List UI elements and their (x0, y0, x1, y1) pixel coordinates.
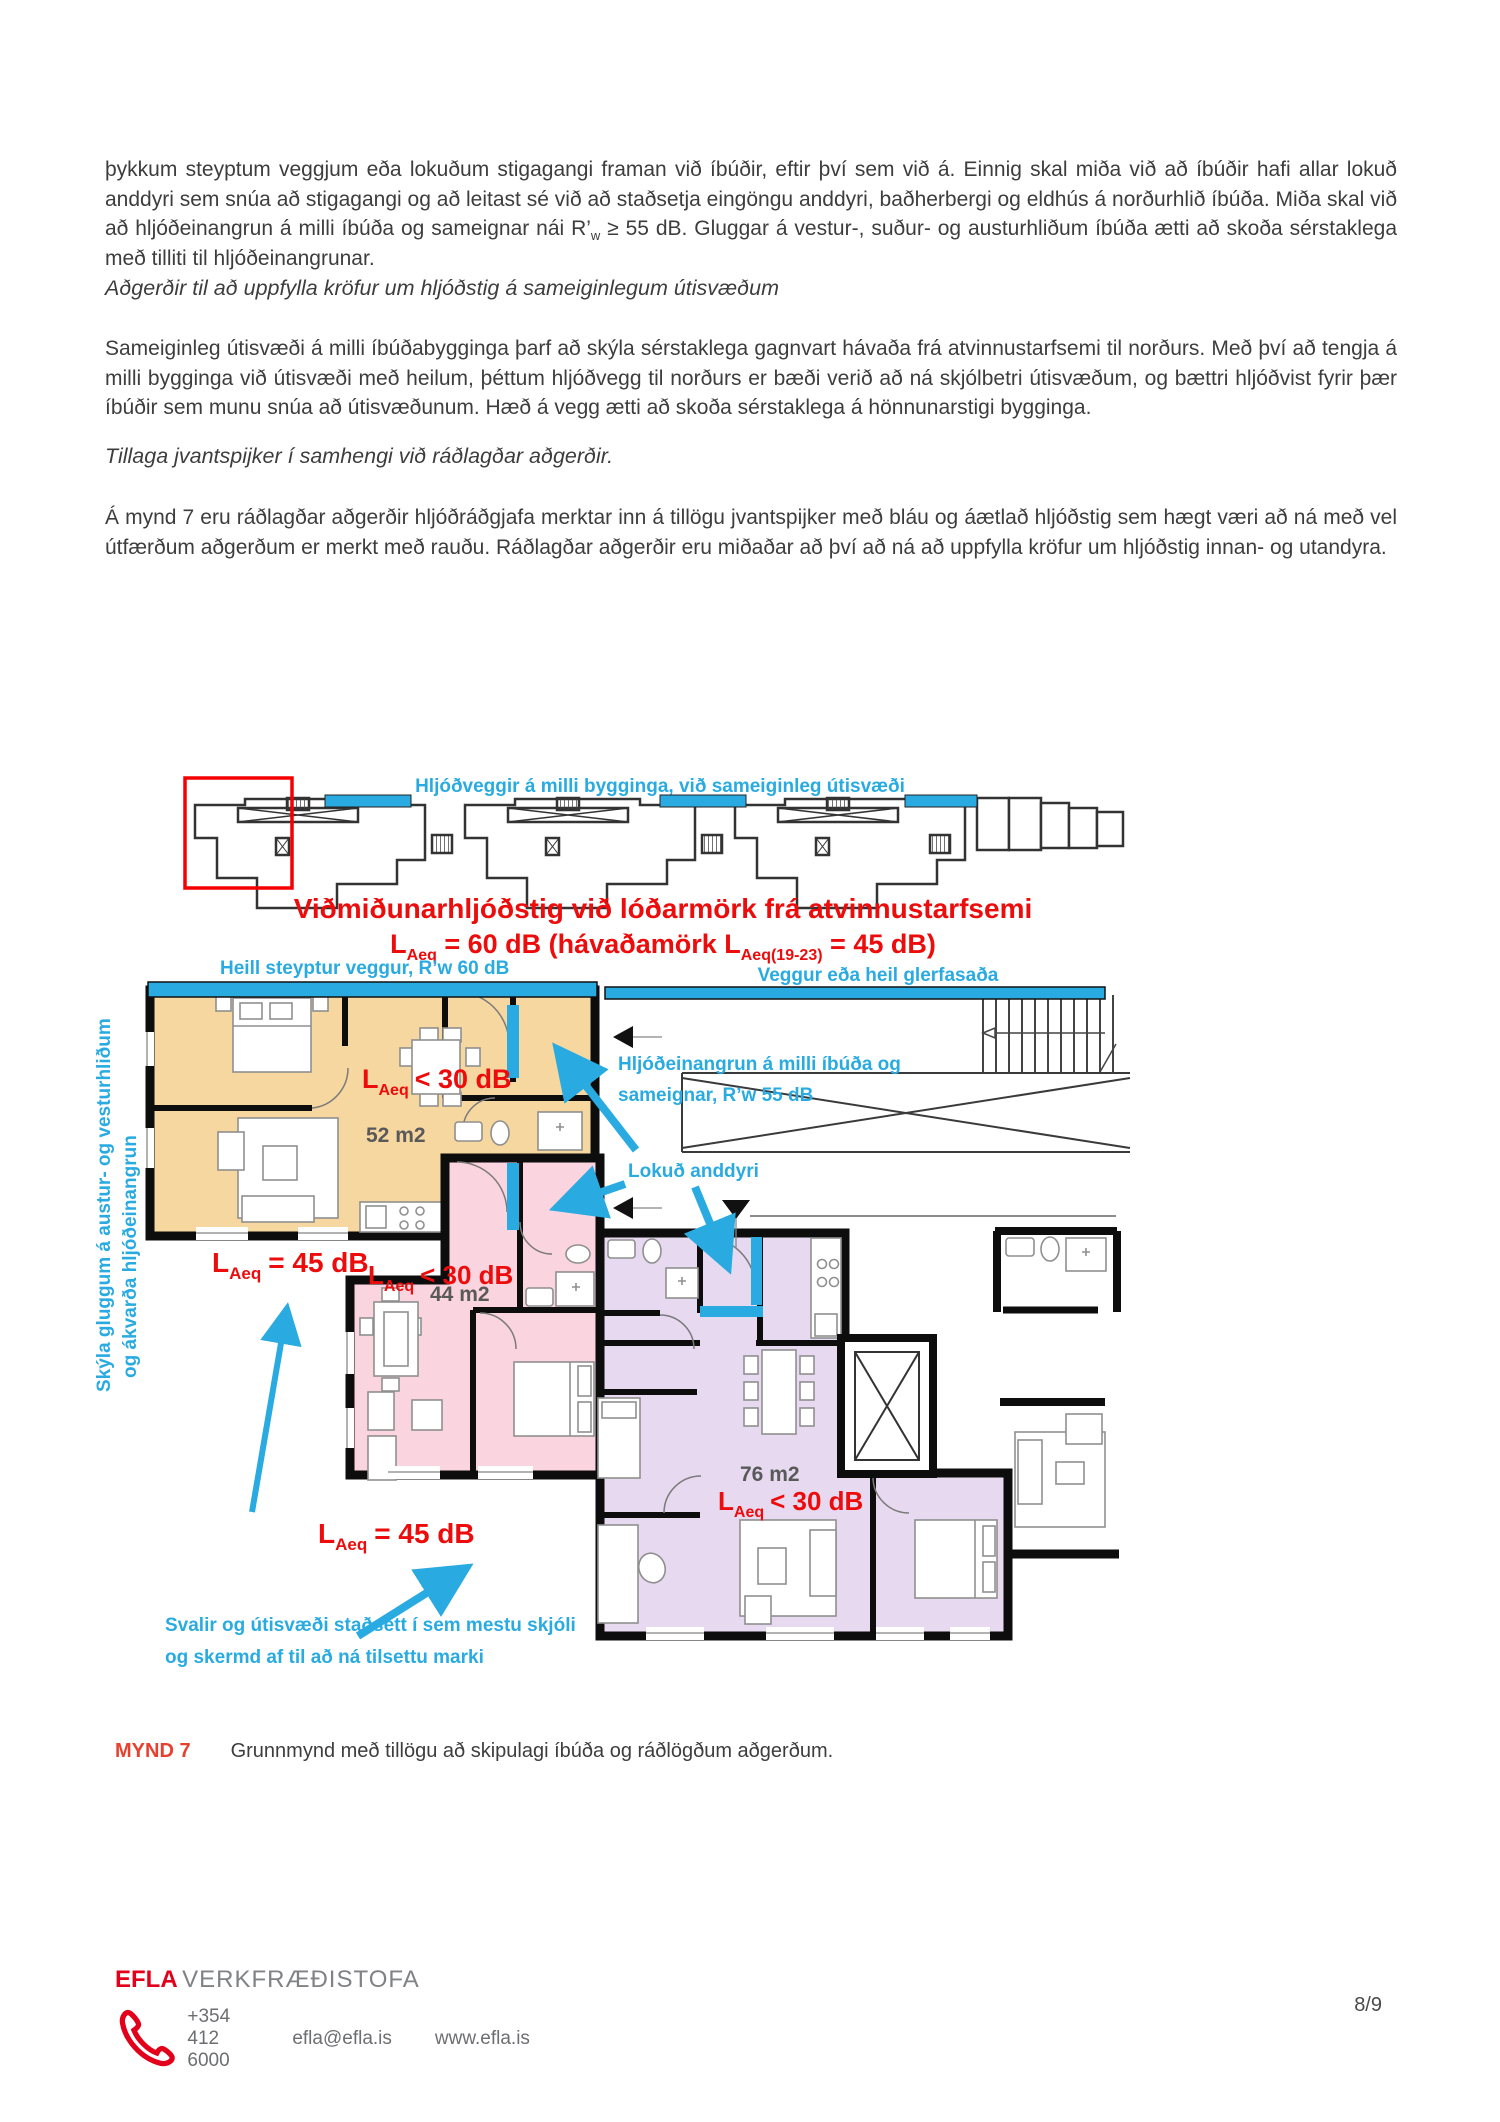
insulation-label-line2: sameignar, R’w 55 dB (618, 1085, 813, 1106)
efla-logo: EFLA (115, 1966, 178, 1993)
insulation-label-line1: Hljóðeinangrun á milli íbúða og (618, 1054, 901, 1075)
area-52-label: 52 m2 (366, 1124, 426, 1147)
efla-logo-suffix: VERKFRÆÐISTOFA (182, 1966, 420, 1993)
paragraph-1: þykkum steyptum veggjum eða lokuðum stig… (105, 155, 1397, 273)
area-44-label: 44 m2 (430, 1283, 490, 1306)
rw-subscript: w (591, 228, 600, 243)
wall-left-label: Heill steyptur veggur, R’w 60 dB (220, 958, 509, 979)
anddyri-label: Lokuð anddyri (628, 1161, 759, 1182)
phone-icon (115, 2006, 180, 2071)
figure-caption-label: MYND 7 (115, 1740, 191, 1762)
site-plan (195, 798, 1123, 908)
area-76-label: 76 m2 (740, 1463, 800, 1486)
elevator-shaft (841, 1338, 933, 1474)
page-footer: EFLA VERKFRÆÐISTOFA +354 412 6000 efla@e… (115, 1966, 530, 2072)
page-number: 8/9 (1354, 1994, 1382, 2017)
paragraph-3: Á mynd 7 eru ráðlagðar aðgerðir hljóðráð… (105, 503, 1397, 562)
document-page: þykkum steyptum veggjum eða lokuðum stig… (0, 0, 1500, 2122)
laeq-45-left-label: LAeq= 45 dB (212, 1247, 369, 1283)
footer-email: efla@efla.is (285, 2028, 392, 2050)
laeq-45-bottom-label: LAeq= 45 dB (318, 1518, 475, 1554)
neighbour-unit (995, 1231, 1119, 1554)
rotated-label-line1: Skýla gluggum á austur- og vesturhliðum (94, 1018, 115, 1392)
floor-plan: LAeq< 30 dB 52 m2 LAeq= 45 dB LAeq< 30 d… (94, 982, 1130, 1668)
stair (983, 995, 1116, 1072)
paragraph-2: Sameiginleg útisvæði á milli íbúðabyggin… (105, 334, 1397, 423)
rotated-label-line2: og ákvarða hljóðeinangrun (120, 1135, 141, 1378)
figure-caption: MYND 7Grunnmynd með tillögu að skipulagi… (115, 1740, 833, 1763)
footer-web: www.efla.is (428, 2028, 530, 2050)
figure-mynd7: Hljóðveggir á milli bygginga, við sameig… (0, 765, 1500, 1715)
footer-phone: +354 412 6000 (115, 2006, 249, 2072)
figure-caption-text: Grunnmynd með tillögu að skipulagi íbúða… (231, 1740, 834, 1762)
wall-right-label: Veggur eða heil glerfasaða (758, 965, 999, 986)
section-heading-1: Aðgerðir til að uppfylla kröfur um hljóð… (105, 276, 1397, 301)
site-plan-label: Hljóðveggir á milli bygginga, við sameig… (415, 776, 905, 797)
svalir-label-line2: og skermd af til að ná tilsettu marki (165, 1647, 484, 1668)
svalir-label-line1: Svalir og útisvæði staðsett í sem mestu … (165, 1615, 576, 1636)
section-heading-2: Tillaga jvantspijker í samhengi við ráðl… (105, 444, 1397, 469)
ref-level-title: Viðmiðunarhljóðstig við lóðarmörk frá at… (294, 893, 1033, 924)
